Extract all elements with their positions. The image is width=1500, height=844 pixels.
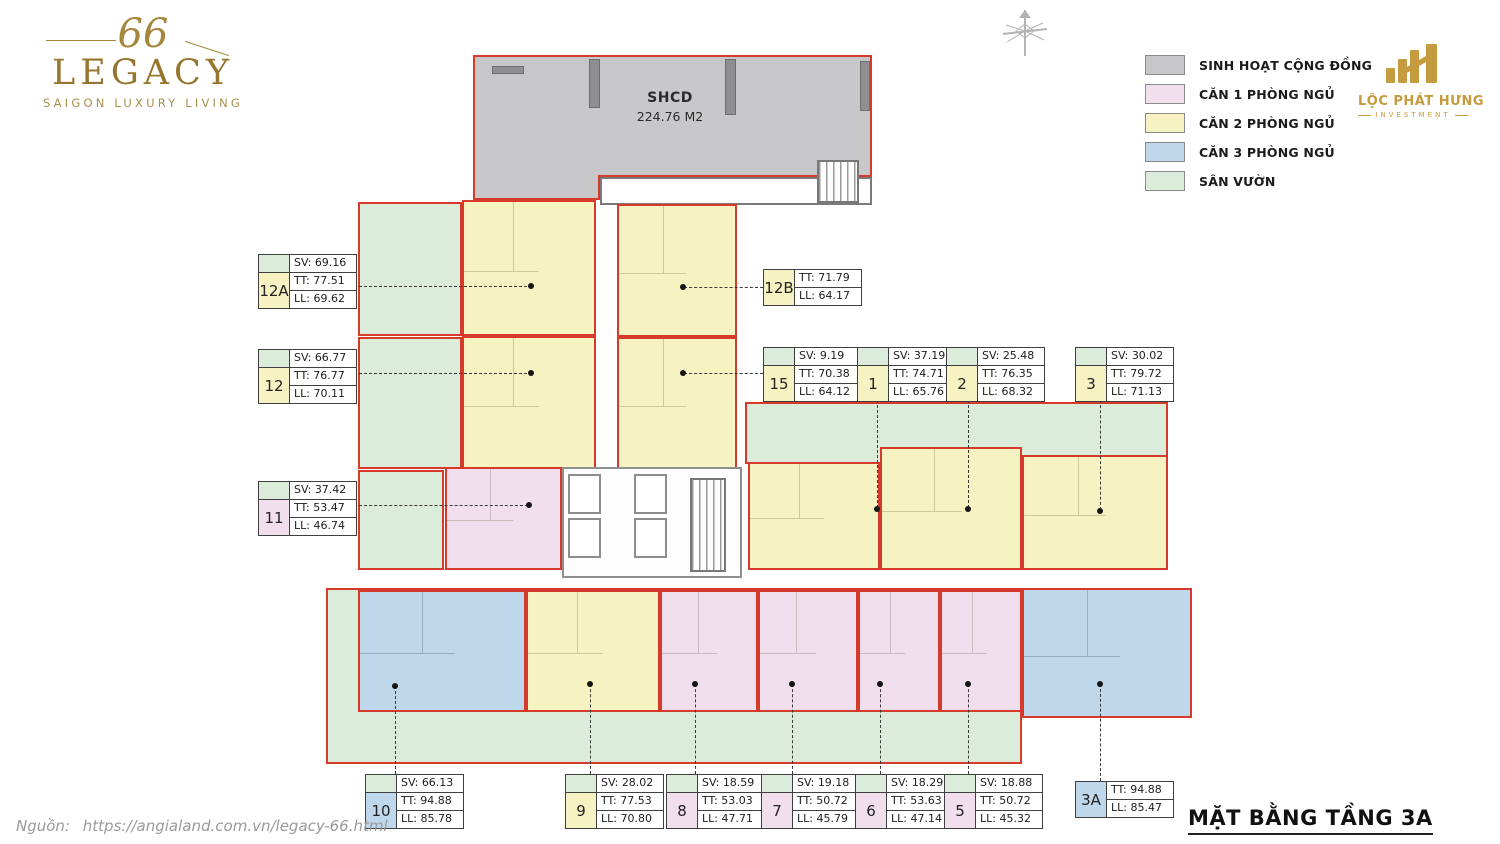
stairs-top-icon [817,160,859,203]
garden-swatch [947,348,977,366]
unit-area-7 [758,590,858,712]
garden-swatch [764,348,794,366]
leader-dot-12 [528,370,534,376]
unit-tt: TT: 70.38 [795,366,861,384]
unit-area-15 [617,337,737,470]
legend-swatch-2br [1145,113,1185,133]
unit-ll: LL: 71.13 [1107,384,1173,401]
unit-tt: TT: 79.72 [1107,366,1173,384]
garden-swatch [566,775,596,793]
unit-ll: LL: 68.32 [978,384,1044,401]
floor-plan-page: 66 LEGACY SAIGON LUXURY LIVING [0,0,1500,844]
garden-swatch [858,348,888,366]
leader-dot-10 [392,683,398,689]
leader-dot-5 [965,681,971,687]
unit-area-9 [526,590,660,712]
elevator-icon [568,474,601,514]
garden-area-left-1 [358,202,462,336]
leader-dot-12b [680,284,686,290]
legend-label-garden: SÂN VƯỜN [1199,174,1276,189]
garden-swatch [259,482,289,500]
unit-label-6: 6 SV: 18.29 TT: 53.63 LL: 47.14 [855,774,954,829]
garden-swatch [762,775,792,793]
leader-line-12 [354,373,532,374]
unit-sv: SV: 18.59 [698,775,764,793]
unit-ll: LL: 70.11 [290,386,356,403]
unit-area-3a [1022,588,1192,718]
compass-icon [998,2,1052,64]
unit-number: 15 [764,366,794,401]
garden-area-left-2 [358,337,462,469]
unit-sv: SV: 66.13 [397,775,463,793]
unit-label-11: 11 SV: 37.42 TT: 53.47 LL: 46.74 [258,481,357,536]
garden-swatch [667,775,697,793]
leader-dot-3 [1097,508,1103,514]
legacy-wordmark: LEGACY [38,54,248,92]
legacy-logo: 66 LEGACY SAIGON LUXURY LIVING [38,14,248,110]
shcd-area-value: 224.76 M2 [595,109,745,124]
legend-label-1br: CĂN 1 PHÒNG NGỦ [1199,87,1335,102]
unit-sv: SV: 66.77 [290,350,356,368]
unit-sv: SV: 18.88 [976,775,1042,793]
developer-subtitle: INVESTMENT [1358,111,1468,119]
unit-ll: LL: 45.32 [976,811,1042,828]
unit-number: 12 [259,368,289,403]
leader-line-12a [354,286,532,287]
stairs-core-icon [690,478,726,572]
unit-label-3a: 3A TT: 94.88 LL: 85.47 [1075,781,1174,818]
unit-area-2 [880,447,1022,570]
unit-number: 6 [856,793,886,828]
unit-ll: LL: 69.62 [290,291,356,308]
unit-number: 12A [259,273,289,308]
column [860,61,870,111]
leader-dot-2 [965,506,971,512]
leader-dot-11 [526,502,532,508]
leader-dot-6 [877,681,883,687]
unit-tt: TT: 71.79 [795,270,861,288]
unit-tt: TT: 53.47 [290,500,356,518]
unit-number: 3A [1076,782,1106,817]
column [492,66,524,74]
legend-item-garden: SÂN VƯỜN [1145,171,1372,191]
unit-ll: LL: 64.12 [795,384,861,401]
leader-dot-1 [874,506,880,512]
unit-number: 7 [762,793,792,828]
leader-line-12b [684,287,763,288]
garden-swatch [259,255,289,273]
garden-swatch [259,350,289,368]
leader-dot-12a [528,283,534,289]
leader-line-5 [968,684,969,774]
unit-tt: TT: 77.51 [290,273,356,291]
leader-dot-8 [692,681,698,687]
source-credit: Nguồn: https://angialand.com.vn/legacy-6… [16,817,388,835]
unit-sv: SV: 37.42 [290,482,356,500]
unit-area-3 [1022,455,1168,570]
legend-label-community: SINH HOẠT CỘNG ĐỒNG [1199,58,1372,73]
unit-number: 12B [764,270,794,305]
unit-ll: LL: 64.17 [795,288,861,305]
unit-number: 1 [858,366,888,401]
unit-area-1 [748,462,880,570]
developer-name: LỘC PHÁT HƯNG [1358,94,1468,109]
shcd-area-extension [473,175,600,200]
garden-swatch [366,775,396,793]
unit-area-5 [940,590,1022,712]
unit-number: 3 [1076,366,1106,401]
unit-tt: TT: 94.88 [397,793,463,811]
unit-ll: LL: 85.78 [397,811,463,828]
unit-tt: TT: 50.72 [793,793,859,811]
source-url: https://angialand.com.vn/legacy-66.html [83,817,388,835]
shcd-text: SHCD 224.76 M2 [595,90,745,124]
leader-dot-7 [789,681,795,687]
unit-label-8: 8 SV: 18.59 TT: 53.03 LL: 47.71 [666,774,765,829]
unit-sv: SV: 28.02 [597,775,663,793]
unit-ll: LL: 45.79 [793,811,859,828]
unit-number: 8 [667,793,697,828]
leader-line-3 [1100,400,1101,510]
leader-line-3a [1100,684,1101,781]
unit-number: 9 [566,793,596,828]
unit-ll: LL: 47.71 [698,811,764,828]
legacy-tagline: SAIGON LUXURY LIVING [38,96,248,110]
unit-label-5: 5 SV: 18.88 TT: 50.72 LL: 45.32 [944,774,1043,829]
unit-number: 11 [259,500,289,535]
leader-line-10 [395,686,396,774]
unit-tt: TT: 53.03 [698,793,764,811]
unit-label-12a: 12A SV: 69.16 TT: 77.51 LL: 69.62 [258,254,357,309]
legend-label-2br: CĂN 2 PHÒNG NGỦ [1199,116,1335,131]
legend-swatch-3br [1145,142,1185,162]
unit-tt: TT: 50.72 [976,793,1042,811]
unit-label-7: 7 SV: 19.18 TT: 50.72 LL: 45.79 [761,774,860,829]
unit-tt: TT: 76.77 [290,368,356,386]
legend-swatch-community [1145,55,1185,75]
legend-swatch-1br [1145,84,1185,104]
legend-item-2br: CĂN 2 PHÒNG NGỦ [1145,113,1372,133]
unit-tt: TT: 76.35 [978,366,1044,384]
unit-sv: SV: 69.16 [290,255,356,273]
unit-sv: SV: 25.48 [978,348,1044,366]
unit-number: 2 [947,366,977,401]
legend-label-3br: CĂN 3 PHÒNG NGỦ [1199,145,1335,160]
leader-dot-9 [587,681,593,687]
unit-area-11 [445,467,562,570]
source-label: Nguồn: [16,817,70,835]
leader-line-2 [968,400,969,508]
unit-label-1: 1 SV: 37.19 TT: 74.71 LL: 65.76 [857,347,956,402]
unit-ll: LL: 85.47 [1107,800,1173,817]
unit-area-12 [462,336,596,470]
leader-line-8 [695,684,696,774]
unit-label-3: 3 SV: 30.02 TT: 79.72 LL: 71.13 [1075,347,1174,402]
unit-sv: SV: 30.02 [1107,348,1173,366]
unit-tt: TT: 94.88 [1107,782,1173,800]
shcd-name: SHCD [595,90,745,106]
elevator-icon [568,518,601,558]
elevator-icon [634,518,667,558]
unit-label-2: 2 SV: 25.48 TT: 76.35 LL: 68.32 [946,347,1045,402]
leader-line-15 [684,373,763,374]
legend-item-community: SINH HOẠT CỘNG ĐỒNG [1145,55,1372,75]
legend-item-1br: CĂN 1 PHÒNG NGỦ [1145,84,1372,104]
loc-phat-hung-logo: LỘC PHÁT HƯNG INVESTMENT [1358,42,1468,119]
unit-tt: TT: 77.53 [597,793,663,811]
legacy-66-glyph: 66 [38,14,248,54]
unit-number: 5 [945,793,975,828]
elevator-icon [634,474,667,514]
legend: SINH HOẠT CỘNG ĐỒNG CĂN 1 PHÒNG NGỦ CĂN … [1145,55,1372,200]
unit-sv: SV: 19.18 [793,775,859,793]
leader-dot-3a [1097,681,1103,687]
unit-label-15: 15 SV: 9.19 TT: 70.38 LL: 64.12 [763,347,862,402]
page-title: MẶT BẰNG TẦNG 3A [1188,806,1433,835]
unit-area-12b [617,204,737,337]
unit-ll: LL: 46.74 [290,518,356,535]
unit-sv: SV: 9.19 [795,348,861,366]
leader-line-6 [880,684,881,774]
leader-line-9 [590,684,591,774]
garden-swatch [1076,348,1106,366]
garden-swatch [945,775,975,793]
unit-area-10 [358,590,526,712]
leader-line-1 [877,400,878,508]
legend-item-3br: CĂN 3 PHÒNG NGỦ [1145,142,1372,162]
garden-area-left-3 [358,470,444,570]
unit-ll: LL: 70.80 [597,811,663,828]
unit-area-12a [462,200,596,336]
unit-area-6 [858,590,940,712]
unit-label-9: 9 SV: 28.02 TT: 77.53 LL: 70.80 [565,774,664,829]
leader-line-7 [792,684,793,774]
unit-area-8 [660,590,758,712]
leader-dot-15 [680,370,686,376]
unit-label-12: 12 SV: 66.77 TT: 76.77 LL: 70.11 [258,349,357,404]
legend-swatch-garden [1145,171,1185,191]
leader-line-11 [354,505,528,506]
garden-swatch [856,775,886,793]
unit-label-12b: 12B TT: 71.79 LL: 64.17 [763,269,862,306]
loc-phat-hung-mark-icon [1358,42,1468,90]
